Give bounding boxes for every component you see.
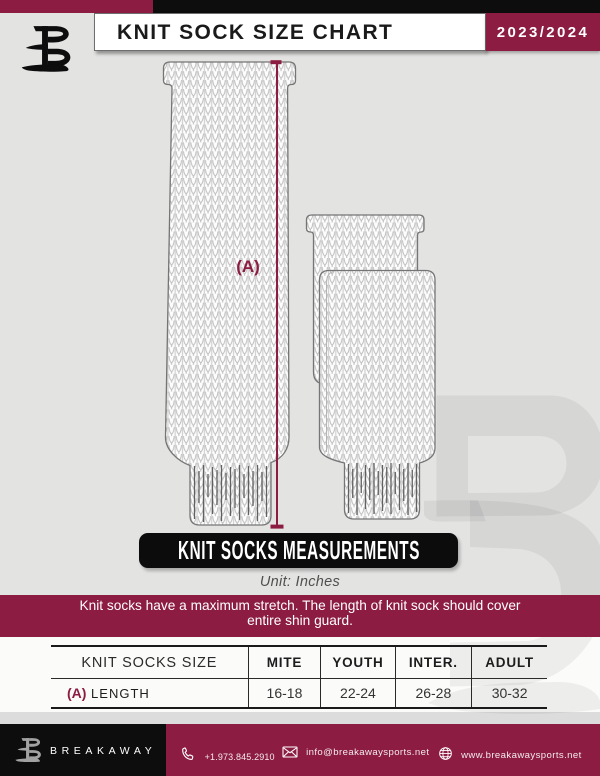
svg-text:(A): (A) xyxy=(236,257,260,276)
